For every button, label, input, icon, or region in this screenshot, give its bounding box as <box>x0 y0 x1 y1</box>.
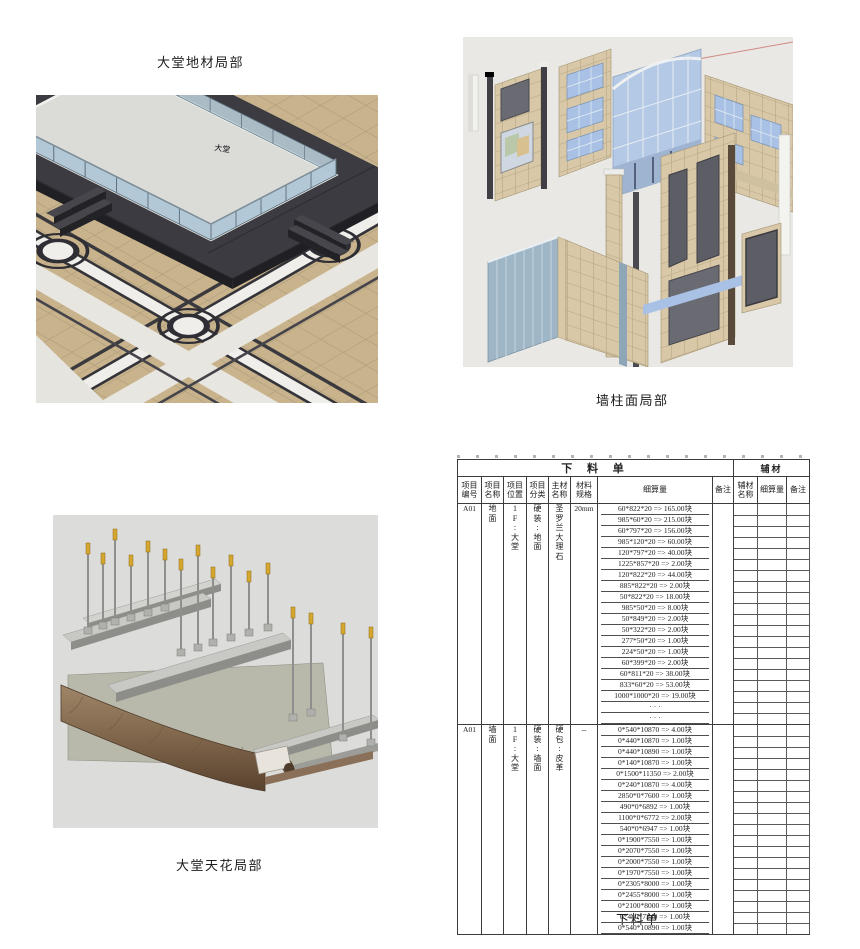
quantity-cell: 885*822*20 => 2.00块 <box>598 581 713 592</box>
quantity-cell: 0*140*10870 => 1.00块 <box>598 758 713 769</box>
aux-materials-header: 辅材 <box>734 460 810 477</box>
aux-cell <box>787 923 810 935</box>
aux-cell <box>787 581 810 592</box>
aux-cell <box>787 658 810 669</box>
aux-cell <box>758 813 787 824</box>
aux-cell <box>787 857 810 868</box>
cutting-list-table: 下 料 单辅材项目 编号项目 名称项目 位置项目 分类主材 名称材料 规格细算量… <box>457 459 810 935</box>
aux-cell <box>787 824 810 835</box>
aux-cell <box>758 504 787 516</box>
aux-cell <box>787 835 810 846</box>
aux-cell <box>787 504 810 516</box>
wall-column-render <box>463 37 793 367</box>
aux-cell <box>758 835 787 846</box>
aux-cell <box>758 758 787 769</box>
aux-cell <box>734 592 758 603</box>
aux-cell <box>734 758 758 769</box>
quantity-cell: 490*0*6892 => 1.00块 <box>598 802 713 813</box>
quantity-cell: 0*440*7340 => 1.00块 <box>598 912 713 923</box>
aux-cell <box>787 647 810 658</box>
aux-cell <box>758 592 787 603</box>
quantity-cell: 277*50*20 => 1.00块 <box>598 636 713 647</box>
aux-cell <box>758 901 787 912</box>
quantity-cell: 120*797*20 => 40.00块 <box>598 548 713 559</box>
project-name-1: 墙 面 <box>482 725 504 935</box>
aux-cell <box>734 780 758 791</box>
quantity-cell: · · · <box>598 713 713 725</box>
aux-cell <box>787 713 810 725</box>
aux-cell <box>758 691 787 702</box>
aux-cell <box>787 890 810 901</box>
aux-cell <box>758 747 787 758</box>
aux-cell <box>734 669 758 680</box>
aux-cell <box>734 680 758 691</box>
aux-cell <box>734 901 758 912</box>
aux-cell <box>787 901 810 912</box>
aux-cell <box>734 713 758 725</box>
column-header-10: 备注 <box>787 477 810 504</box>
aux-cell <box>758 647 787 658</box>
aux-cell <box>734 725 758 737</box>
aux-cell <box>734 625 758 636</box>
table-top-ticks <box>457 455 809 458</box>
aux-cell <box>734 879 758 890</box>
quantity-cell: 985*60*20 => 215.00块 <box>598 515 713 526</box>
aux-cell <box>734 614 758 625</box>
aux-cell <box>734 813 758 824</box>
quantity-cell: 120*822*20 => 44.00块 <box>598 570 713 581</box>
quantity-cell: 1225*857*20 => 2.00块 <box>598 559 713 570</box>
aux-cell <box>734 581 758 592</box>
aux-cell <box>787 680 810 691</box>
aux-cell <box>734 923 758 935</box>
caption-ceiling-detail: 大堂天花局部 <box>176 855 263 874</box>
column-header-3: 项目 分类 <box>527 477 549 504</box>
aux-cell <box>787 570 810 581</box>
aux-cell <box>758 725 787 737</box>
quantity-cell: 985*120*20 => 60.00块 <box>598 537 713 548</box>
aux-cell <box>787 758 810 769</box>
aux-cell <box>734 548 758 559</box>
remark-cell-0 <box>713 504 734 725</box>
aux-cell <box>758 846 787 857</box>
cutting-list: 下 料 单辅材项目 编号项目 名称项目 位置项目 分类主材 名称材料 规格细算量… <box>457 455 809 935</box>
grid-window-wall <box>559 49 611 177</box>
quantity-cell: 0*2070*7550 => 1.00块 <box>598 846 713 857</box>
aux-cell <box>734 824 758 835</box>
quantity-cell: 0*2000*7550 => 1.00块 <box>598 857 713 868</box>
aux-cell <box>787 802 810 813</box>
aux-cell <box>734 570 758 581</box>
column-header-4: 主材 名称 <box>549 477 571 504</box>
aux-cell <box>734 890 758 901</box>
aux-cell <box>758 923 787 935</box>
aux-cell <box>734 791 758 802</box>
aux-cell <box>734 736 758 747</box>
aux-cell <box>734 835 758 846</box>
quantity-cell: 50*322*20 => 2.00块 <box>598 625 713 636</box>
aux-cell <box>734 603 758 614</box>
aux-cell <box>787 813 810 824</box>
aux-cell <box>787 625 810 636</box>
quantity-cell: 0*240*10870 => 4.00块 <box>598 780 713 791</box>
aux-cell <box>787 868 810 879</box>
quantity-cell: 60*797*20 => 156.00块 <box>598 526 713 537</box>
material-name-0: 圣 罗 兰 大 理 石 <box>549 504 571 725</box>
quantity-cell: · · · <box>598 702 713 713</box>
aux-cell <box>787 736 810 747</box>
column-header-9: 细算量 <box>758 477 787 504</box>
aux-cell <box>787 636 810 647</box>
quantity-cell: 833*60*20 => 53.00块 <box>598 680 713 691</box>
aux-cell <box>734 868 758 879</box>
project-code-0: A01 <box>458 504 482 725</box>
aux-cell <box>734 769 758 780</box>
aux-cell <box>787 691 810 702</box>
quantity-cell: 60*399*20 => 2.00块 <box>598 658 713 669</box>
aux-cell <box>787 725 810 737</box>
quantity-cell: 0*440*10890 => 1.00块 <box>598 747 713 758</box>
quantity-cell: 2850*0*7600 => 1.00块 <box>598 791 713 802</box>
quantity-cell: 1100*0*6772 => 2.00块 <box>598 813 713 824</box>
aux-cell <box>734 691 758 702</box>
aux-cell <box>734 636 758 647</box>
aux-cell <box>734 526 758 537</box>
aux-cell <box>787 515 810 526</box>
quantity-cell: 0*1900*7550 => 1.00块 <box>598 835 713 846</box>
framed-panel <box>742 223 781 313</box>
aux-cell <box>787 769 810 780</box>
aux-cell <box>734 846 758 857</box>
aux-cell <box>734 802 758 813</box>
aux-cell <box>758 736 787 747</box>
aux-cell <box>758 680 787 691</box>
column-header-0: 项目 编号 <box>458 477 482 504</box>
quantity-cell: 60*822*20 => 165.00块 <box>598 504 713 516</box>
quantity-cell: 0*1500*11350 => 2.00块 <box>598 769 713 780</box>
aux-cell <box>758 802 787 813</box>
quantity-cell: 540*0*6947 => 1.00块 <box>598 824 713 835</box>
aux-cell <box>758 890 787 901</box>
project-name-0: 地 面 <box>482 504 504 725</box>
aux-cell <box>787 669 810 680</box>
aux-cell <box>787 559 810 570</box>
aux-cell <box>758 868 787 879</box>
aux-cell <box>787 614 810 625</box>
quantity-cell: 0*1970*7550 => 1.00块 <box>598 868 713 879</box>
quantity-cell: 0*2100*8000 => 1.00块 <box>598 901 713 912</box>
aux-cell <box>787 592 810 603</box>
quantity-cell: 0*2455*8000 => 1.00块 <box>598 890 713 901</box>
aux-cell <box>734 515 758 526</box>
caption-wall-column-detail: 墙柱面局部 <box>596 390 669 409</box>
aux-cell <box>758 559 787 570</box>
aux-cell <box>787 846 810 857</box>
aux-cell <box>787 747 810 758</box>
column-header-1: 项目 名称 <box>482 477 504 504</box>
aux-cell <box>734 702 758 713</box>
project-category-1: 硬 装 : 墙 面 <box>527 725 549 935</box>
table-title: 下 料 单 <box>458 460 734 477</box>
floor-material-render: 大堂 <box>36 95 378 403</box>
aux-cell <box>758 515 787 526</box>
quantity-cell: 0*540*10890 => 1.00块 <box>598 923 713 935</box>
dark-panel-wall <box>661 133 735 363</box>
quantity-cell: 50*849*20 => 2.00块 <box>598 614 713 625</box>
aux-cell <box>758 669 787 680</box>
aux-cell <box>734 912 758 923</box>
page-canvas: 大堂地材局部 墙柱面局部 大堂天花局部 下料单 <box>0 0 860 949</box>
aux-cell <box>734 857 758 868</box>
ceiling-section-render <box>53 515 378 828</box>
aux-cell <box>734 537 758 548</box>
aux-cell <box>787 702 810 713</box>
aux-cell <box>787 526 810 537</box>
aux-cell <box>758 769 787 780</box>
aux-cell <box>787 548 810 559</box>
project-location-1: 1 F : 大 堂 <box>504 725 527 935</box>
aux-cell <box>758 857 787 868</box>
column-header-5: 材料 规格 <box>571 477 598 504</box>
aux-cell <box>758 824 787 835</box>
aux-cell <box>758 570 787 581</box>
white-pilaster-left <box>469 75 478 131</box>
aux-cell <box>758 791 787 802</box>
quantity-cell: 0*440*10870 => 1.00块 <box>598 736 713 747</box>
column-header-2: 项目 位置 <box>504 477 527 504</box>
project-code-1: A01 <box>458 725 482 935</box>
aux-cell <box>758 658 787 669</box>
quantity-cell: 1000*1000*20 => 19.00块 <box>598 691 713 702</box>
aux-cell <box>734 747 758 758</box>
caption-floor-detail: 大堂地材局部 <box>157 52 244 71</box>
aux-cell <box>758 548 787 559</box>
aux-cell <box>734 647 758 658</box>
aux-cell <box>758 537 787 548</box>
quantity-cell: 0*2305*8000 => 1.00块 <box>598 879 713 890</box>
aux-cell <box>758 636 787 647</box>
aux-cell <box>758 879 787 890</box>
aux-cell <box>734 559 758 570</box>
aux-cell <box>758 713 787 725</box>
aux-cell <box>787 603 810 614</box>
aux-cell <box>758 581 787 592</box>
aux-cell <box>734 658 758 669</box>
quantity-cell: 985*50*20 => 8.00块 <box>598 603 713 614</box>
quantity-cell: 0*540*10870 => 4.00块 <box>598 725 713 737</box>
aux-cell <box>787 879 810 890</box>
material-name-1: 硬 包 : 皮 革 <box>549 725 571 935</box>
column-header-7: 备注 <box>713 477 734 504</box>
remark-cell-1 <box>713 725 734 935</box>
aux-cell <box>758 526 787 537</box>
quantity-cell: 224*50*20 => 1.00块 <box>598 647 713 658</box>
aux-cell <box>787 537 810 548</box>
aux-cell <box>758 702 787 713</box>
column-header-6: 细算量 <box>598 477 713 504</box>
aux-cell <box>787 791 810 802</box>
aux-cell <box>758 780 787 791</box>
project-category-0: 硬 装 : 地 面 <box>527 504 549 725</box>
aux-cell <box>787 912 810 923</box>
aux-cell <box>758 614 787 625</box>
aux-cell <box>758 603 787 614</box>
aux-cell <box>734 504 758 516</box>
aux-cell <box>787 780 810 791</box>
column-header-8: 辅材 名称 <box>734 477 758 504</box>
quantity-cell: 60*811*20 => 38.00块 <box>598 669 713 680</box>
material-spec-0: 20mm <box>571 504 598 725</box>
quantity-cell: 50*822*20 => 18.00块 <box>598 592 713 603</box>
aux-cell <box>758 625 787 636</box>
material-spec-1: -- <box>571 725 598 935</box>
project-location-0: 1 F : 大 堂 <box>504 504 527 725</box>
aux-cell <box>758 912 787 923</box>
